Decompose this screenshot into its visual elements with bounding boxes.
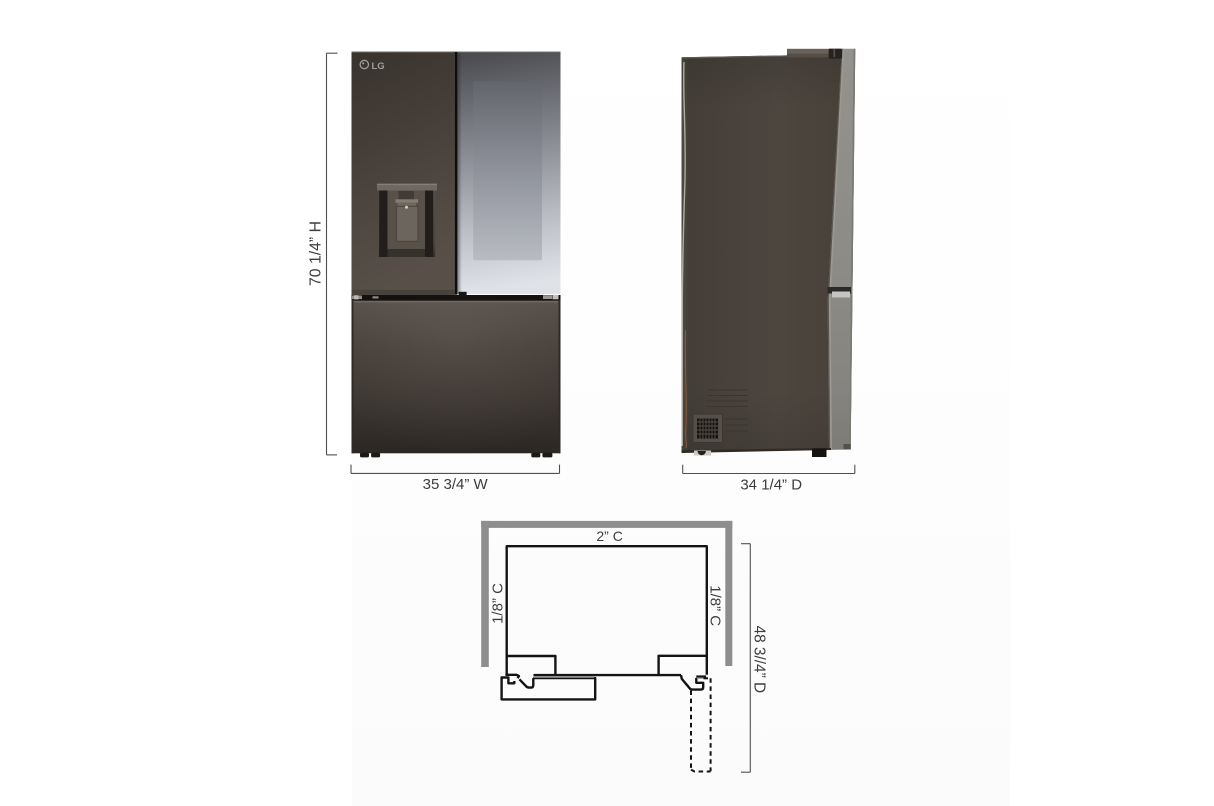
svg-text:34 1/4” D: 34 1/4” D — [740, 476, 802, 493]
svg-text:70 1/4” H: 70 1/4” H — [308, 221, 325, 286]
svg-text:48 3//4” D: 48 3//4” D — [751, 626, 768, 694]
svg-text:35 3/4” W: 35 3/4” W — [423, 476, 489, 493]
svg-text:2” C: 2” C — [596, 528, 622, 544]
svg-text:1/8” C: 1/8” C — [707, 585, 724, 626]
svg-text:1/8” C: 1/8” C — [490, 583, 507, 624]
svg-text:LG: LG — [372, 61, 385, 72]
